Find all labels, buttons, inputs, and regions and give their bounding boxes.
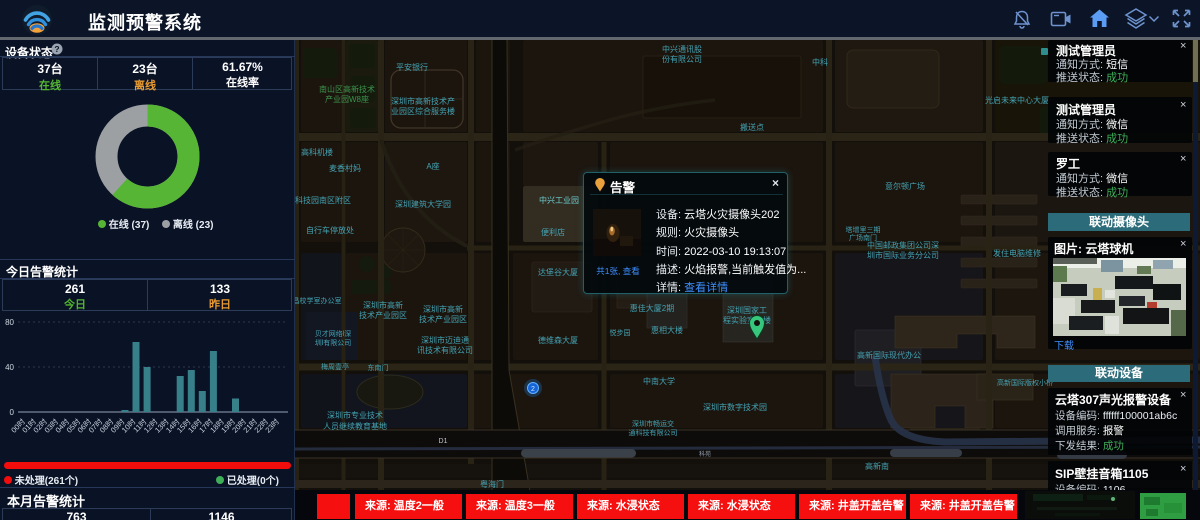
- svg-text:意尔顿广场: 意尔顿广场: [885, 181, 925, 191]
- svg-text:科苑: 科苑: [699, 450, 711, 458]
- svg-text:圳市国际业务分公司: 圳市国际业务分公司: [867, 250, 939, 260]
- svg-text:深圳市高新技术产: 深圳市高新技术产: [391, 96, 455, 106]
- svg-text:产业园W8座: 产业园W8座: [325, 94, 369, 104]
- svg-text:昌校学室办公室: 昌校学室办公室: [295, 296, 342, 305]
- svg-text:贝才网络l深: 贝才网络l深: [315, 329, 352, 338]
- svg-text:科技园南区附区: 科技园南区附区: [295, 195, 351, 205]
- svg-text:业园区综合服务楼: 业园区综合服务楼: [391, 106, 455, 116]
- svg-text:深圳市高新: 深圳市高新: [423, 304, 463, 314]
- svg-text:A座: A座: [426, 161, 439, 171]
- svg-text:塔增里三期: 塔增里三期: [846, 225, 881, 234]
- svg-text:深圳建筑大学园: 深圳建筑大学园: [395, 199, 451, 209]
- svg-text:便利店: 便利店: [541, 227, 565, 237]
- svg-text:份有限公司: 份有限公司: [662, 54, 702, 64]
- svg-text:东南门: 东南门: [368, 363, 389, 372]
- svg-text:深圳国家工: 深圳国家工: [727, 305, 767, 315]
- svg-text:惠相大楼: 惠相大楼: [651, 325, 683, 335]
- svg-text:2: 2: [531, 386, 535, 393]
- svg-text:麦香村妈: 麦香村妈: [329, 163, 361, 173]
- svg-text:梅周壹亭: 梅周壹亭: [321, 362, 349, 371]
- svg-text:通科技有限公司: 通科技有限公司: [629, 428, 678, 437]
- svg-text:中南大学: 中南大学: [643, 376, 675, 386]
- svg-text:中兴通讯股: 中兴通讯股: [662, 44, 702, 54]
- svg-text:深圳市高新: 深圳市高新: [363, 300, 403, 310]
- svg-text:技术产业园区: 技术产业园区: [419, 314, 467, 324]
- svg-text:人员继续教育基地: 人员继续教育基地: [323, 421, 387, 431]
- svg-text:南山区高新技术: 南山区高新技术: [319, 84, 375, 94]
- svg-text:40: 40: [5, 363, 14, 372]
- svg-text:0: 0: [10, 408, 15, 417]
- svg-text:D1: D1: [439, 438, 448, 445]
- svg-text:中国邮政集团公司深: 中国邮政集团公司深: [867, 240, 939, 250]
- svg-text:讯技术有限公司: 讯技术有限公司: [417, 345, 473, 355]
- svg-text:中科: 中科: [812, 57, 828, 67]
- svg-text:高新国际现代办公: 高新国际现代办公: [857, 350, 921, 360]
- svg-text:圳l有限公司: 圳l有限公司: [315, 338, 352, 347]
- svg-text:惠佳大厦2期: 惠佳大厦2期: [630, 303, 674, 313]
- svg-text:搬送点: 搬送点: [740, 122, 764, 132]
- svg-text:德维森大厦: 德维森大厦: [538, 335, 578, 345]
- svg-text:?: ?: [54, 44, 59, 54]
- svg-text:深圳市数字技术园: 深圳市数字技术园: [703, 402, 767, 412]
- svg-text:光启未来中心大厦: 光启未来中心大厦: [985, 95, 1049, 105]
- svg-text:80: 80: [5, 318, 14, 327]
- svg-text:达堡谷大厦: 达堡谷大厦: [538, 267, 578, 277]
- svg-text:高科机楼: 高科机楼: [301, 147, 333, 157]
- svg-text:中兴工业园: 中兴工业园: [539, 195, 579, 205]
- svg-text:平安银行: 平安银行: [396, 62, 428, 72]
- svg-text:高新国际版权小桥: 高新国际版权小桥: [997, 378, 1053, 387]
- svg-text:粤海门: 粤海门: [480, 479, 504, 489]
- svg-text:23时: 23时: [263, 416, 282, 435]
- svg-text:深圳市迈迪通: 深圳市迈迪通: [421, 335, 469, 345]
- svg-text:深圳市专业技术: 深圳市专业技术: [327, 410, 383, 420]
- svg-text:技术产业园区: 技术产业园区: [359, 310, 407, 320]
- svg-text:深圳市畅运交: 深圳市畅运交: [632, 419, 674, 428]
- svg-text:高新南: 高新南: [865, 461, 889, 471]
- svg-text:自行车停放处: 自行车停放处: [306, 225, 354, 235]
- svg-text:悦步园: 悦步园: [610, 328, 631, 337]
- svg-text:发住电脑维修: 发住电脑维修: [993, 248, 1041, 258]
